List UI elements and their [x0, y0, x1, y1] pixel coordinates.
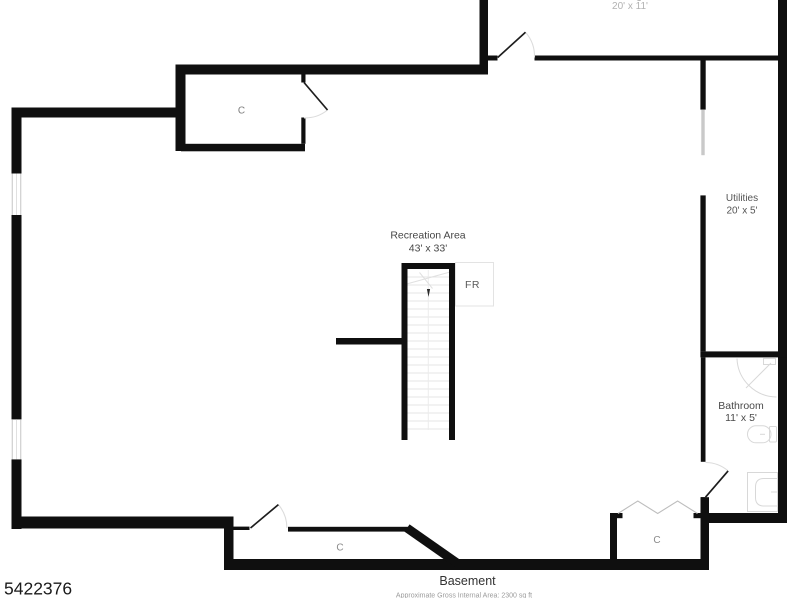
svg-text:5422376: 5422376: [4, 579, 72, 598]
svg-text:FR: FR: [465, 279, 480, 291]
svg-text:Utilities: Utilities: [726, 193, 758, 204]
svg-text:11' x 5': 11' x 5': [725, 412, 757, 424]
svg-text:Approximate Gross Internal Are: Approximate Gross Internal Area: 2300 sq…: [396, 593, 532, 598]
svg-text:C: C: [653, 535, 660, 546]
svg-text:20' x 5': 20' x 5': [726, 206, 757, 217]
svg-text:C: C: [238, 106, 245, 117]
svg-text:Bathroom: Bathroom: [718, 400, 764, 412]
svg-text:Basement: Basement: [439, 574, 496, 588]
svg-text:Recreation Area: Recreation Area: [390, 230, 465, 242]
svg-text:20' x 11': 20' x 11': [612, 1, 648, 12]
svg-text:43' x 33': 43' x 33': [409, 243, 447, 255]
svg-text:C: C: [336, 543, 343, 554]
